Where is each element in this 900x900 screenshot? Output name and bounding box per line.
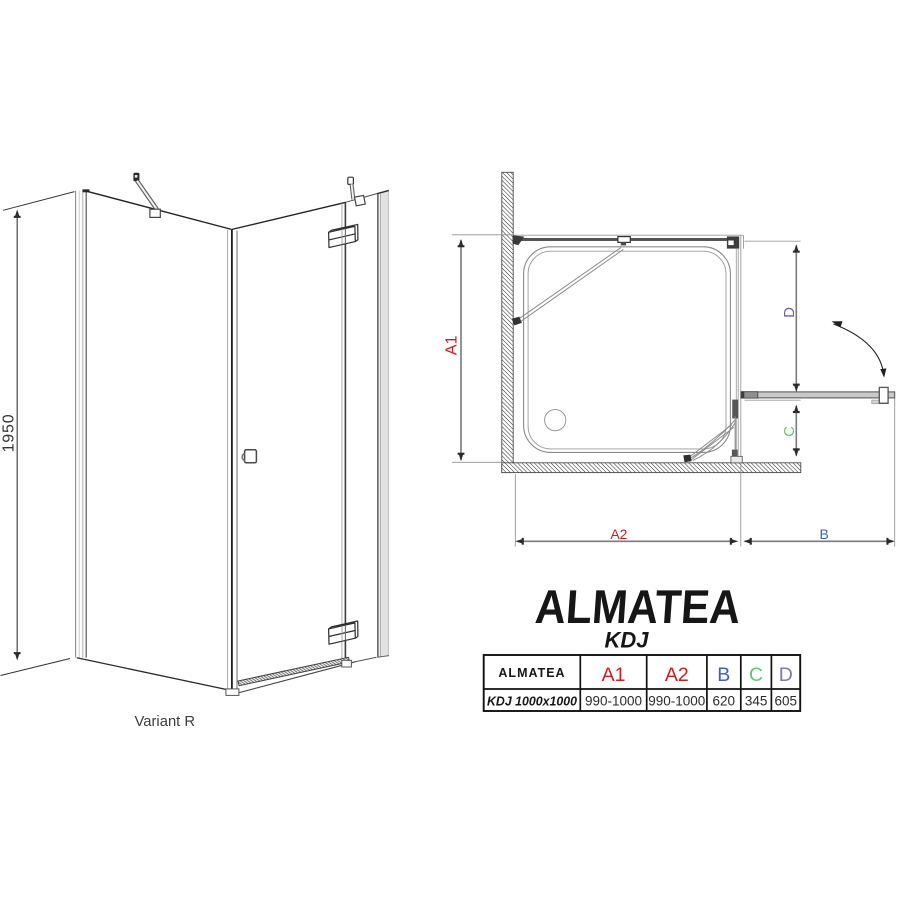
svg-text:345: 345 [745, 694, 768, 709]
svg-text:620: 620 [713, 694, 736, 709]
svg-text:605: 605 [775, 694, 798, 709]
svg-text:990-1000: 990-1000 [648, 694, 705, 709]
svg-text:A2: A2 [665, 664, 689, 686]
svg-text:KDJ: KDJ [605, 628, 650, 653]
svg-text:ALMATEA: ALMATEA [534, 581, 743, 634]
svg-text:B: B [717, 664, 730, 686]
svg-text:A2: A2 [610, 526, 627, 542]
svg-text:990-1000: 990-1000 [585, 694, 642, 709]
svg-text:ALMATEA: ALMATEA [498, 666, 565, 680]
svg-text:D: D [779, 664, 793, 686]
svg-text:KDJ 1000x1000: KDJ 1000x1000 [487, 694, 578, 709]
svg-text:B: B [820, 526, 829, 542]
svg-text:Variant R: Variant R [135, 714, 196, 730]
svg-text:C: C [749, 664, 763, 686]
svg-text:D: D [781, 307, 798, 318]
svg-text:1950: 1950 [0, 414, 17, 453]
svg-text:A1: A1 [444, 335, 461, 355]
svg-text:C: C [781, 426, 798, 437]
svg-text:A1: A1 [602, 664, 626, 686]
